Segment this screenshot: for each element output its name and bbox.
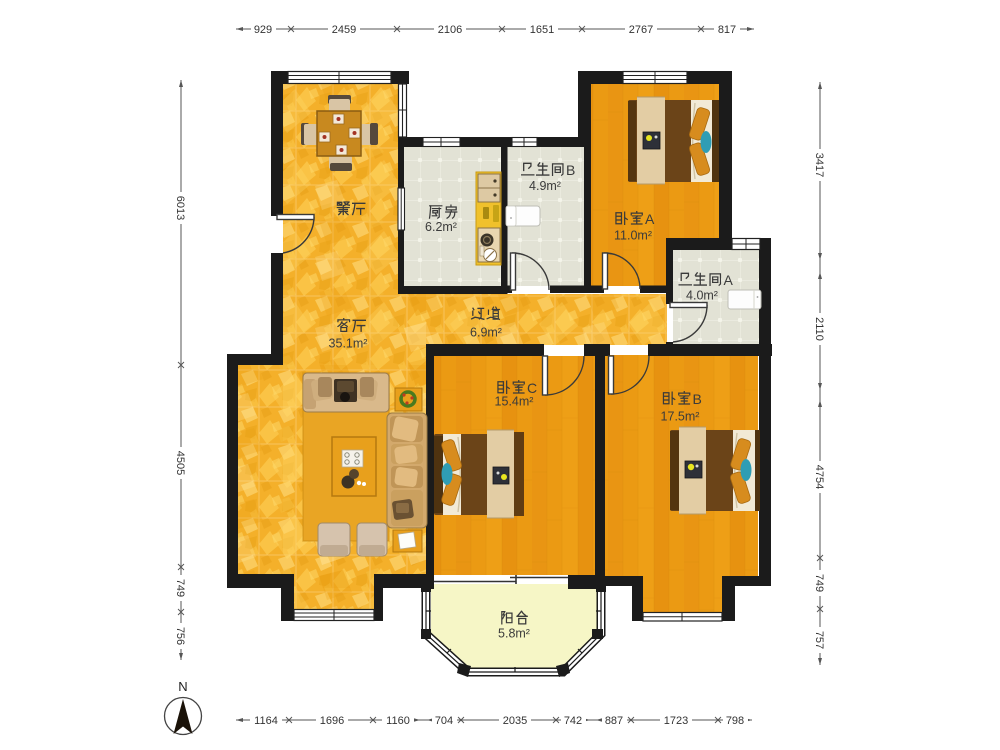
svg-text:5.8m²: 5.8m² bbox=[498, 627, 530, 641]
svg-text:2767: 2767 bbox=[629, 24, 653, 36]
svg-text:A: A bbox=[724, 272, 734, 288]
svg-text:11.0m²: 11.0m² bbox=[614, 229, 652, 243]
svg-text:756: 756 bbox=[174, 627, 186, 645]
svg-text:3417: 3417 bbox=[813, 153, 825, 177]
svg-text:757: 757 bbox=[813, 631, 825, 649]
svg-text:4754: 4754 bbox=[813, 465, 825, 489]
svg-text:2110: 2110 bbox=[813, 317, 825, 341]
svg-text:2459: 2459 bbox=[332, 24, 356, 36]
svg-text:6013: 6013 bbox=[174, 196, 186, 220]
svg-text:A: A bbox=[645, 211, 655, 227]
svg-text:N: N bbox=[178, 679, 187, 694]
svg-text:15.4m²: 15.4m² bbox=[495, 395, 534, 409]
svg-text:704: 704 bbox=[435, 715, 453, 727]
svg-text:4.0m²: 4.0m² bbox=[686, 289, 718, 303]
svg-text:1160: 1160 bbox=[386, 715, 410, 727]
svg-text:4.9m²: 4.9m² bbox=[529, 179, 561, 193]
svg-text:35.1m²: 35.1m² bbox=[329, 337, 368, 351]
svg-text:929: 929 bbox=[254, 24, 272, 36]
svg-text:6.9m²: 6.9m² bbox=[470, 326, 502, 340]
svg-text:887: 887 bbox=[605, 715, 623, 727]
svg-text:742: 742 bbox=[564, 715, 582, 727]
svg-text:1696: 1696 bbox=[320, 715, 344, 727]
svg-text:6.2m²: 6.2m² bbox=[425, 220, 457, 234]
svg-text:B: B bbox=[566, 162, 575, 178]
svg-text:2035: 2035 bbox=[503, 715, 527, 727]
svg-text:1164: 1164 bbox=[254, 715, 278, 727]
svg-text:817: 817 bbox=[718, 24, 736, 36]
svg-text:1723: 1723 bbox=[664, 715, 688, 727]
svg-text:798: 798 bbox=[726, 715, 744, 727]
svg-text:749: 749 bbox=[813, 574, 825, 592]
svg-text:4505: 4505 bbox=[174, 451, 186, 475]
svg-text:17.5m²: 17.5m² bbox=[661, 410, 700, 424]
svg-text:2106: 2106 bbox=[438, 24, 462, 36]
svg-text:B: B bbox=[693, 391, 702, 407]
svg-text:1651: 1651 bbox=[530, 24, 554, 36]
svg-text:749: 749 bbox=[174, 579, 186, 597]
